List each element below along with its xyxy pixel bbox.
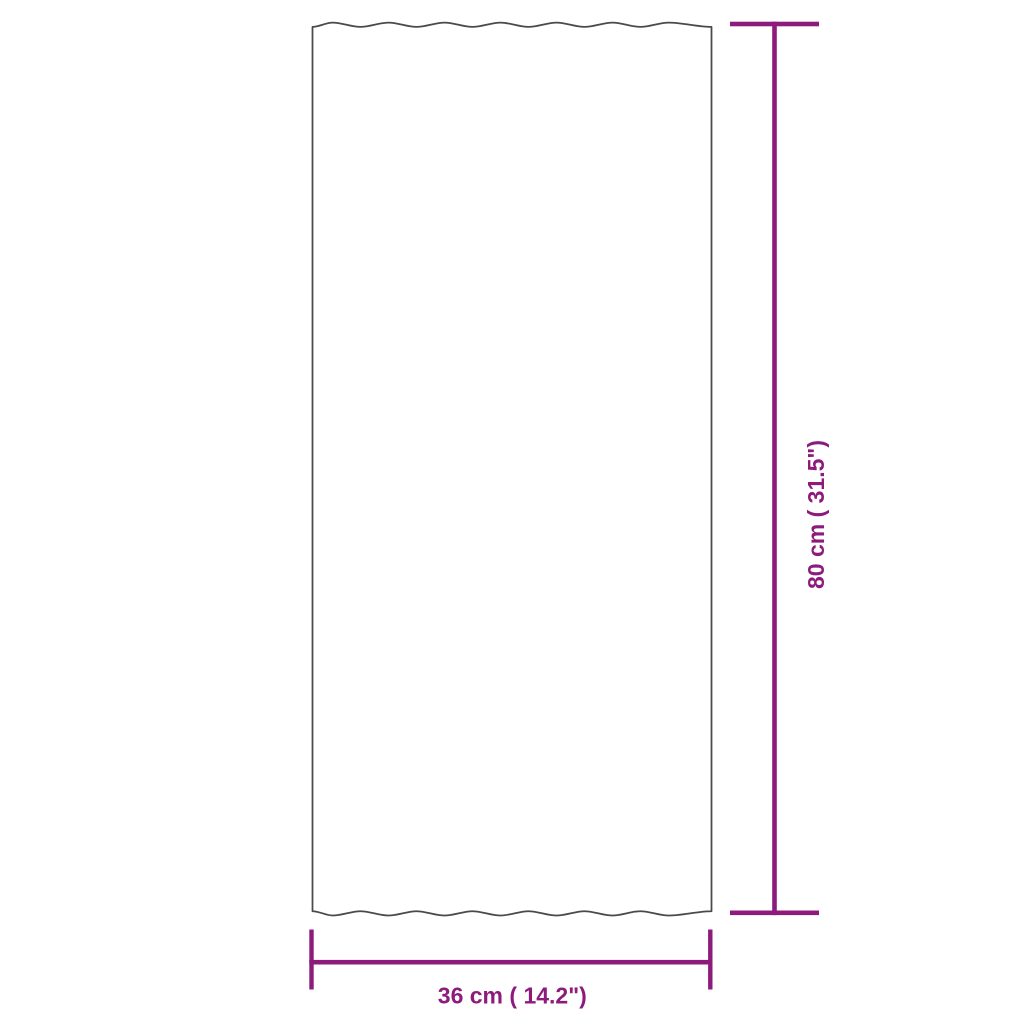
svg-text:80 cm ( 31.5"): 80 cm ( 31.5") — [803, 440, 829, 589]
svg-text:36 cm ( 14.2"): 36 cm ( 14.2") — [438, 983, 587, 1009]
